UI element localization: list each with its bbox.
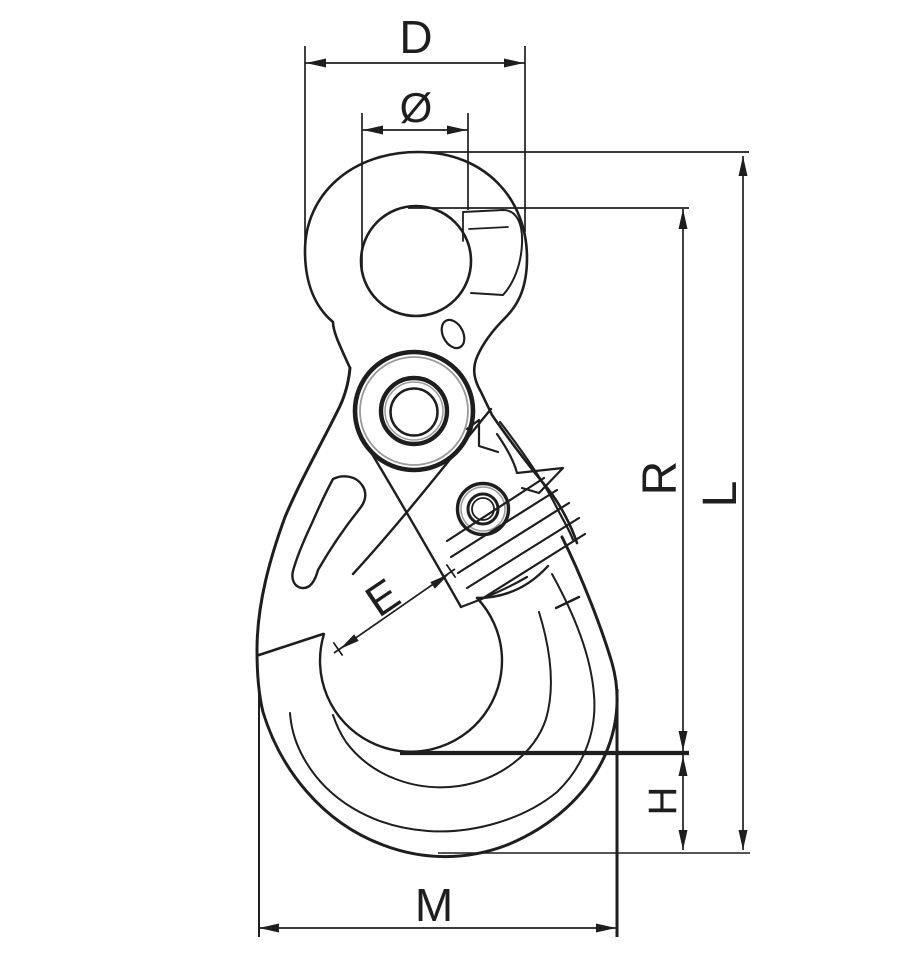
chamfer-edge xyxy=(259,634,323,655)
dim-label-E: E xyxy=(357,569,409,626)
arrow-E-lower xyxy=(340,634,359,649)
hook-bowl-outline xyxy=(257,368,617,857)
latch-notch xyxy=(467,420,498,452)
latch-pocket xyxy=(463,210,522,295)
detent-oval-hole xyxy=(437,316,469,352)
dim-label-diameter: Ø xyxy=(400,84,433,131)
dim-label-M: M xyxy=(415,879,453,931)
eye-inner-hole xyxy=(361,206,471,316)
pivot-boss-hole xyxy=(391,389,438,436)
pivot-boss-shading xyxy=(360,357,468,465)
arrow-D-left xyxy=(306,59,326,68)
arrow-dia-left xyxy=(363,126,383,135)
arrow-R-top xyxy=(679,209,688,229)
dim-label-H: H xyxy=(641,787,685,816)
arrow-D-right xyxy=(504,59,524,68)
bowl-section-line-inner xyxy=(333,612,551,787)
pivot-boss-ring-shading xyxy=(385,382,443,440)
dim-label-L: L xyxy=(694,481,747,508)
arrow-M-right xyxy=(596,924,616,933)
arrow-L-top xyxy=(739,156,748,176)
arrow-M-left xyxy=(259,924,279,933)
bowl-inner-edge xyxy=(320,598,502,752)
technical-drawing-page: D Ø R L H M E xyxy=(0,0,924,972)
hatch-line xyxy=(458,503,569,573)
arrow-H-bottom xyxy=(679,830,688,850)
arrow-L-bottom xyxy=(739,830,748,850)
hatch-line xyxy=(480,534,585,600)
dim-label-R: R xyxy=(634,461,687,496)
latch-pocket-divider xyxy=(469,227,508,229)
latch-rivet-outer xyxy=(458,484,509,535)
arrow-H-top xyxy=(679,756,688,776)
arrow-dia-right xyxy=(447,126,467,135)
dim-label-D: D xyxy=(399,11,432,63)
dim-E-tick-upper xyxy=(446,564,455,577)
hatch-line xyxy=(467,518,579,588)
arrow-R-bottom xyxy=(679,731,688,751)
self-locking-hook-drawing: D Ø R L H M E xyxy=(0,0,924,972)
nose-inner-edge xyxy=(477,566,548,598)
